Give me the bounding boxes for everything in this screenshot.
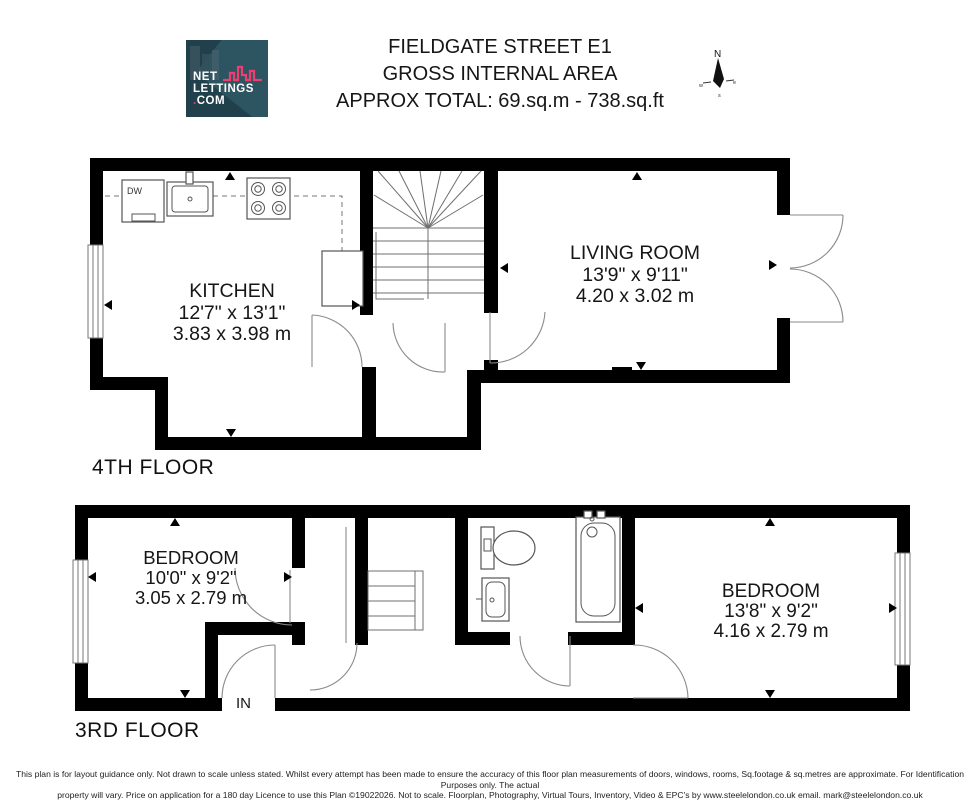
bedroom1-name: BEDROOM (143, 547, 239, 568)
bedroom2-imperial-dims: 13'8" x 9'2" (724, 601, 818, 622)
disclaimer-line2: property will vary. Price on application… (0, 790, 980, 801)
floor-plan-3rd: BEDROOM 10'0" x 9'2" 3.05 x 2.79 m BEDRO… (73, 505, 910, 712)
toilet-icon (481, 527, 535, 569)
bedroom2-metric-dims: 4.16 x 2.79 m (713, 621, 828, 642)
staircase-3rd (368, 571, 423, 630)
compass-east-label: e (733, 80, 736, 86)
living-room-imperial-dims: 13'9" x 9'11" (582, 264, 688, 286)
bathtub-icon (576, 511, 620, 622)
living-room-name: LIVING ROOM (570, 242, 700, 264)
compass-west-label: w (698, 83, 703, 89)
floorplan-page: NET LETTINGS .COM FIELDGATE STREET E1 GR… (0, 0, 980, 808)
bedroom1-imperial-dims: 10'0" x 9'2" (145, 567, 236, 588)
living-room-metric-dims: 4.20 x 3.02 m (576, 285, 694, 307)
entrance-door (222, 645, 275, 698)
kitchen-sink-icon (167, 172, 213, 216)
kitchen-name: KITCHEN (189, 280, 275, 302)
compass-needle (713, 58, 724, 88)
bedroom1-metric-dims: 3.05 x 2.79 m (135, 587, 247, 608)
disclaimer-line1: This plan is for layout guidance only. N… (0, 769, 980, 790)
french-doors-living-room (790, 215, 843, 322)
bedroom2-window (895, 553, 910, 665)
dishwasher-icon: DW (122, 180, 164, 222)
floor-plan-4th: DW (88, 158, 843, 450)
dishwasher-label: DW (127, 186, 142, 196)
basin-icon (476, 578, 509, 621)
hob-icon (247, 178, 290, 219)
bedroom1-window (73, 560, 88, 663)
bedroom2-name: BEDROOM (722, 581, 820, 602)
disclaimer: This plan is for layout guidance only. N… (0, 769, 980, 801)
compass-icon: N w e s (698, 49, 736, 99)
kitchen-metric-dims: 3.83 x 3.98 m (173, 323, 291, 345)
compass-south-label: s (718, 93, 721, 99)
floorplan-drawing: N w e s (0, 0, 980, 808)
kitchen-unit-icon (322, 251, 363, 306)
kitchen-imperial-dims: 12'7" x 13'1" (179, 302, 286, 324)
kitchen-window (88, 245, 103, 338)
entrance-in-label: IN (236, 695, 251, 712)
compass-north-label: N (714, 49, 721, 60)
staircase-4th (373, 171, 484, 299)
